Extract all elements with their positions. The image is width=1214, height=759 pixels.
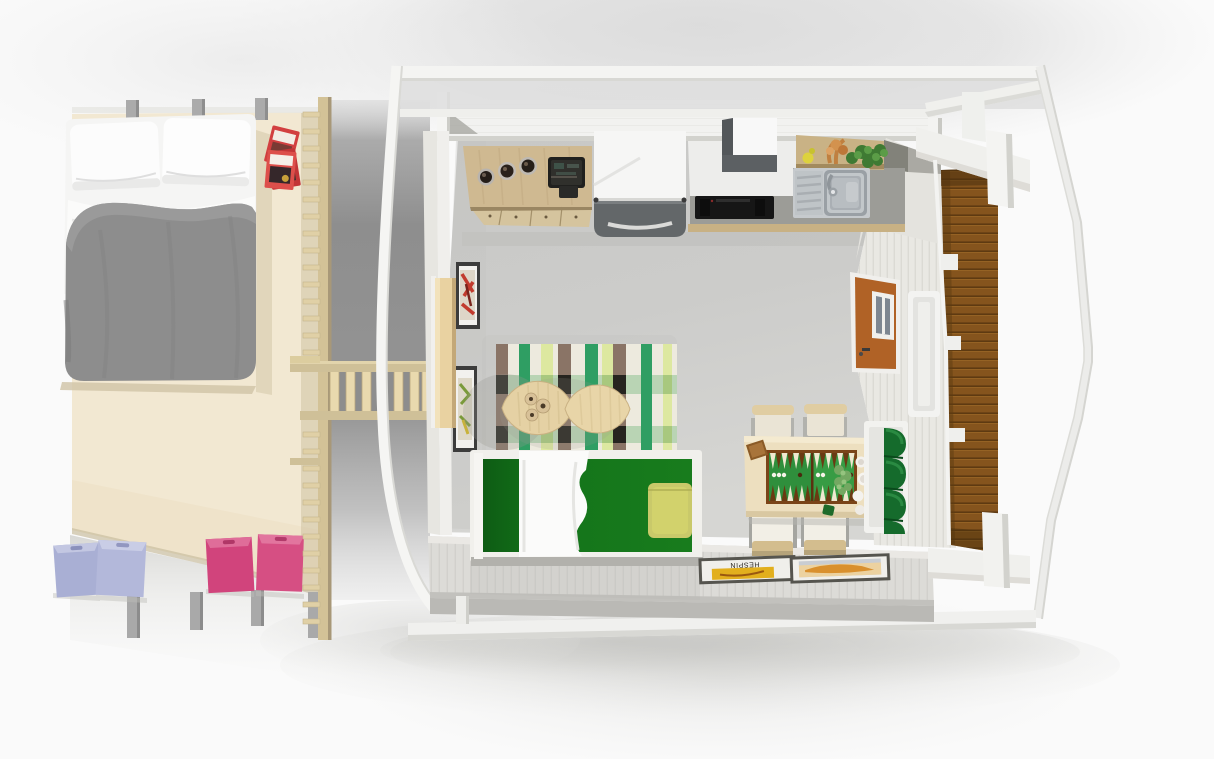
- svg-text:HESPIN: HESPIN: [730, 560, 760, 568]
